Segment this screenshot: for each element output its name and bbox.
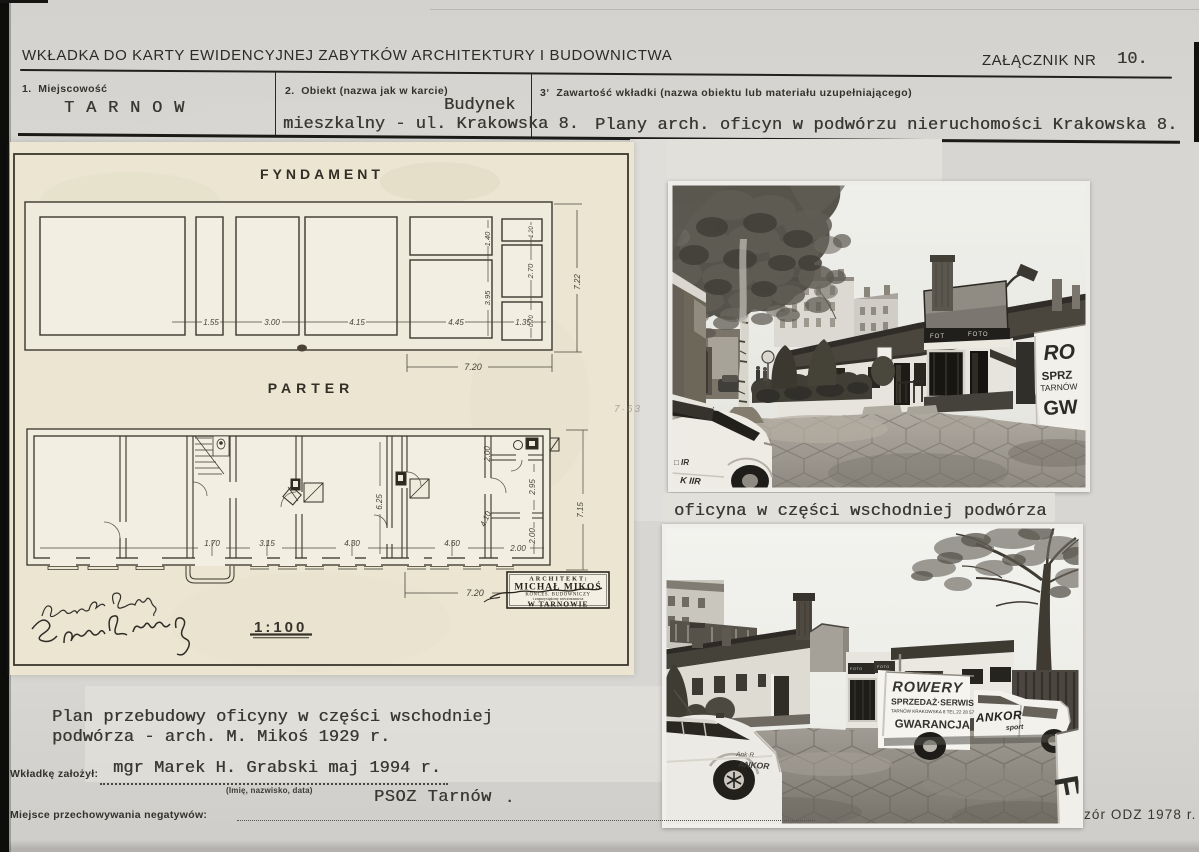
svg-text:2.00: 2.00 <box>483 446 492 463</box>
svg-text:SPRZEDAŻ·SERWIS: SPRZEDAŻ·SERWIS <box>891 696 974 707</box>
svg-text:4.60: 4.60 <box>444 539 460 548</box>
svg-text:GWARANCJA: GWARANCJA <box>895 718 971 731</box>
svg-text:FOT: FOT <box>930 334 945 340</box>
svg-text:4.30: 4.30 <box>344 539 360 548</box>
svg-text:6.25: 6.25 <box>375 494 384 510</box>
svg-text:ARCHITEKT:: ARCHITEKT: <box>529 576 588 583</box>
svg-text:7.20: 7.20 <box>464 362 482 372</box>
svg-text:FOTO: FOTO <box>968 332 989 338</box>
svg-text:□ IR: □ IR <box>674 458 689 467</box>
svg-text:1.20: 1.20 <box>529 226 535 238</box>
svg-text:FOTO: FOTO <box>877 664 890 669</box>
svg-text:4.15: 4.15 <box>349 318 365 327</box>
svg-text:ROWERY: ROWERY <box>892 679 964 696</box>
svg-text:FYNDAMENT: FYNDAMENT <box>260 166 384 182</box>
svg-text:FOTO: FOTO <box>850 666 863 671</box>
svg-text:3.15: 3.15 <box>259 539 275 548</box>
svg-text:2.00: 2.00 <box>528 528 537 545</box>
svg-text:2.95: 2.95 <box>528 479 537 496</box>
svg-text:K IIR: K IIR <box>680 475 702 486</box>
svg-text:1.55: 1.55 <box>203 318 219 327</box>
svg-text:0.70: 0.70 <box>529 315 535 327</box>
svg-text:PARTER: PARTER <box>268 380 355 396</box>
svg-text:TARNÓW: TARNÓW <box>1040 381 1078 393</box>
svg-text:sport: sport <box>1006 724 1025 732</box>
svg-text:2.70: 2.70 <box>526 263 535 279</box>
svg-text:7.20: 7.20 <box>466 588 484 598</box>
svg-text:GW: GW <box>1043 396 1079 420</box>
svg-text:2.00: 2.00 <box>509 544 526 553</box>
svg-text:7.15: 7.15 <box>576 502 585 518</box>
svg-text:7.22: 7.22 <box>573 274 582 290</box>
svg-text:1.40: 1.40 <box>483 231 492 246</box>
svg-text:RO: RO <box>1043 340 1076 365</box>
svg-text:3.95: 3.95 <box>483 290 492 305</box>
svg-text:3.00: 3.00 <box>264 318 280 327</box>
svg-text:4.45: 4.45 <box>448 318 464 327</box>
svg-text:W TARNOWIE: W TARNOWIE <box>527 600 588 609</box>
svg-text:Ank·R: Ank·R <box>735 751 755 759</box>
svg-text:1.70: 1.70 <box>204 539 220 548</box>
